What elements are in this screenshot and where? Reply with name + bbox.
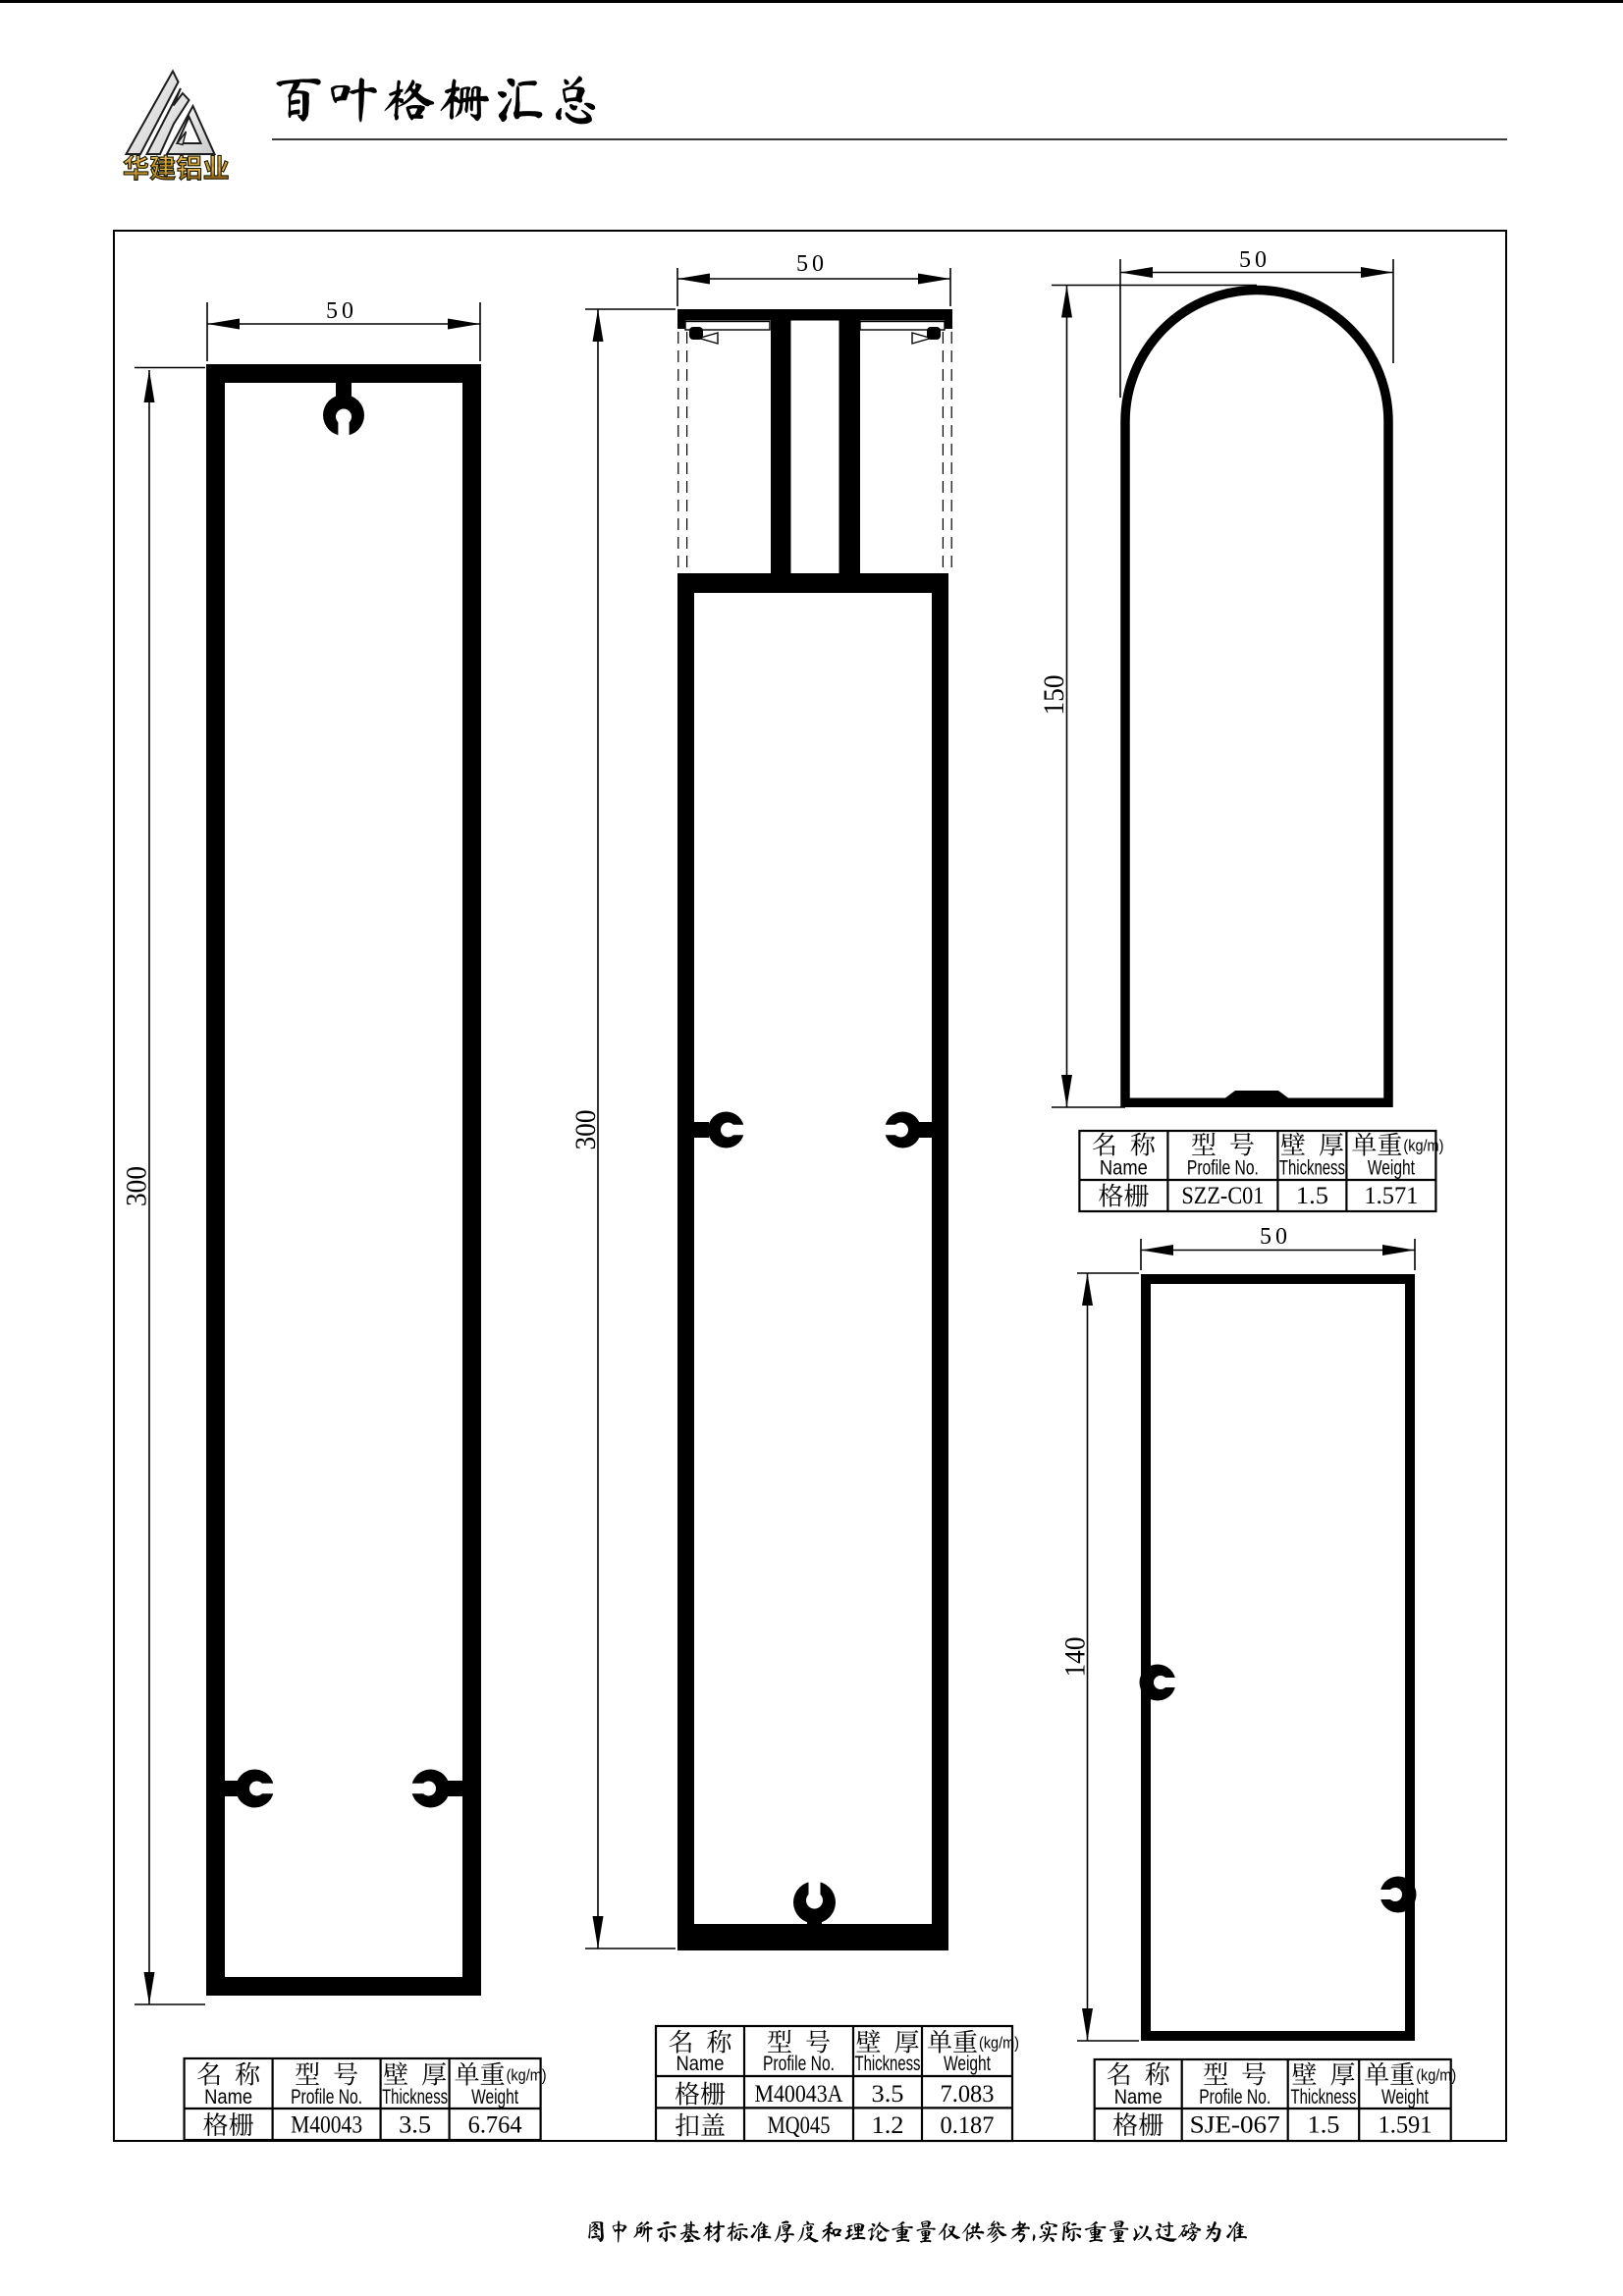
svg-text:140: 140 xyxy=(1059,1637,1092,1678)
svg-text:1.5: 1.5 xyxy=(1296,1183,1328,1209)
svg-text:(kg/m): (kg/m) xyxy=(507,2066,547,2085)
svg-text:6.764: 6.764 xyxy=(468,2112,522,2139)
svg-text:1.5: 1.5 xyxy=(1308,2112,1340,2139)
svg-text:1.571: 1.571 xyxy=(1364,1183,1418,1209)
svg-text:Thickness: Thickness xyxy=(382,2086,448,2109)
svg-text:(kg/m): (kg/m) xyxy=(979,2034,1019,2053)
svg-text:0.187: 0.187 xyxy=(941,2112,995,2139)
svg-text:1.591: 1.591 xyxy=(1379,2112,1433,2139)
svg-text:150: 150 xyxy=(1038,675,1070,716)
svg-text:50: 50 xyxy=(1260,1224,1291,1250)
svg-text:Thickness: Thickness xyxy=(855,2053,921,2075)
svg-text:Weight: Weight xyxy=(471,2086,518,2109)
svg-text:Name: Name xyxy=(1100,1157,1148,1180)
svg-text:7.083: 7.083 xyxy=(941,2081,995,2108)
svg-text:Weight: Weight xyxy=(1368,1157,1415,1180)
svg-text:Profile No.: Profile No. xyxy=(1199,2086,1271,2109)
svg-text:Name: Name xyxy=(676,2053,725,2075)
svg-text:Profile No.: Profile No. xyxy=(1187,1157,1259,1180)
svg-text:300: 300 xyxy=(569,1110,602,1150)
svg-text:Weight: Weight xyxy=(1381,2086,1429,2109)
svg-text:M40043A: M40043A xyxy=(755,2081,843,2108)
svg-text:Thickness: Thickness xyxy=(1279,1157,1345,1180)
svg-text:1.2: 1.2 xyxy=(872,2112,904,2139)
svg-text:MQ045: MQ045 xyxy=(768,2112,831,2139)
svg-text:(kg/m): (kg/m) xyxy=(1403,1137,1443,1155)
svg-text:SZZ-C01: SZZ-C01 xyxy=(1181,1183,1264,1209)
svg-text:Weight: Weight xyxy=(944,2053,991,2075)
svg-text:3.5: 3.5 xyxy=(399,2112,431,2139)
svg-text:50: 50 xyxy=(326,298,357,324)
svg-text:SJE-067: SJE-067 xyxy=(1190,2112,1280,2139)
svg-text:50: 50 xyxy=(796,251,828,277)
svg-text:Thickness: Thickness xyxy=(1291,2086,1357,2109)
svg-text:3.5: 3.5 xyxy=(872,2081,904,2108)
svg-text:Profile No.: Profile No. xyxy=(763,2053,835,2075)
svg-text:(kg/m): (kg/m) xyxy=(1416,2066,1456,2085)
svg-text:Name: Name xyxy=(1114,2086,1163,2109)
svg-text:M40043: M40043 xyxy=(291,2112,362,2139)
svg-text:50: 50 xyxy=(1239,247,1271,273)
svg-text:Name: Name xyxy=(204,2086,252,2109)
svg-text:Profile No.: Profile No. xyxy=(291,2086,362,2109)
svg-text:300: 300 xyxy=(121,1166,153,1206)
